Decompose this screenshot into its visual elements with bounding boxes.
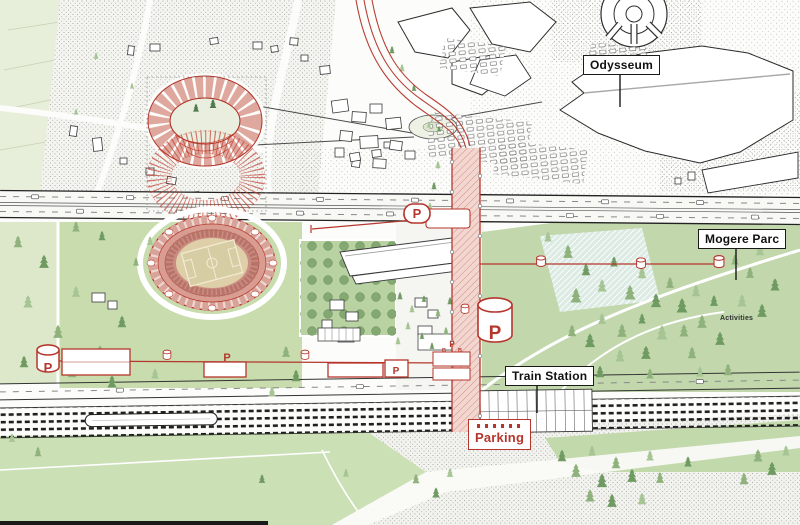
bus-stop-marker — [461, 304, 469, 313]
bus-bay-label: B — [442, 348, 446, 354]
parking-marker-label: P — [44, 360, 53, 375]
parking-marker-label: P — [223, 352, 230, 364]
site-plan-map: P P P P P P B B Odysseum Mogere Parc Tra… — [0, 0, 800, 525]
parking-marker-silo-large: P — [478, 298, 512, 344]
bus-stop-marker — [714, 256, 724, 268]
label-parking: Parking — [468, 419, 531, 450]
bus-bay-label: B — [458, 348, 462, 354]
label-activities: Activities — [720, 315, 753, 322]
bus-stop-marker — [163, 350, 171, 359]
parking-marker-label: P — [489, 323, 502, 344]
bus-stop-marker — [637, 258, 646, 269]
parking-marker-silo-west: P — [37, 345, 59, 375]
parking-marker-label: P — [413, 206, 422, 221]
bus-stop-marker — [301, 350, 309, 359]
label-odysseum: Odysseum — [583, 55, 660, 75]
parking-marker-label: P — [393, 366, 400, 377]
parking-marker-capsule: P — [404, 204, 430, 223]
label-mogere-parc: Mogere Parc — [698, 229, 786, 249]
site-plan-drawing: P P P P P P B B — [0, 0, 800, 525]
parking-marker-label: P — [449, 340, 455, 349]
stadium-detailed — [140, 209, 284, 317]
label-train-station: Train Station — [505, 366, 594, 386]
bus-stop-marker — [537, 256, 546, 267]
